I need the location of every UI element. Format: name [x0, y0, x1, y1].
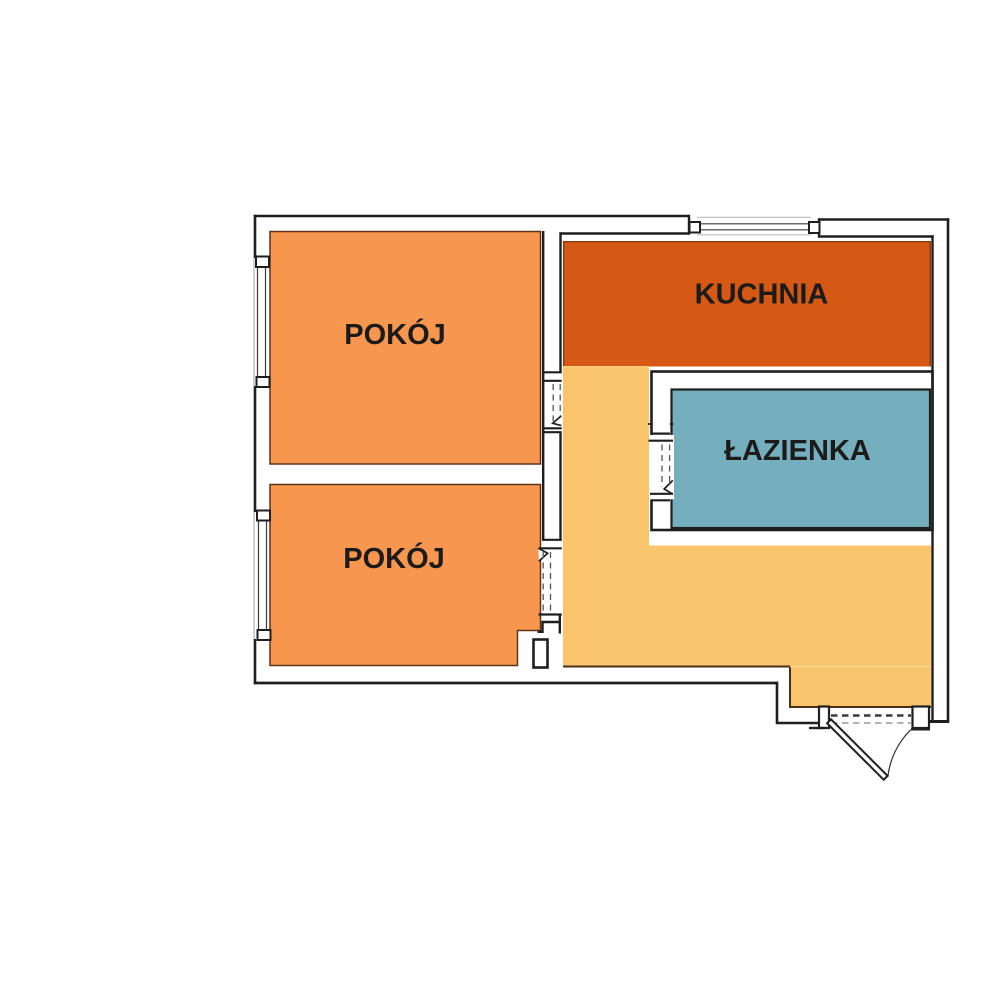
- svg-text:POKÓJ: POKÓJ: [344, 317, 446, 351]
- svg-text:ŁAZIENKA: ŁAZIENKA: [724, 435, 871, 467]
- svg-text:KUCHNIA: KUCHNIA: [695, 279, 829, 311]
- svg-text:POKÓJ: POKÓJ: [343, 541, 445, 575]
